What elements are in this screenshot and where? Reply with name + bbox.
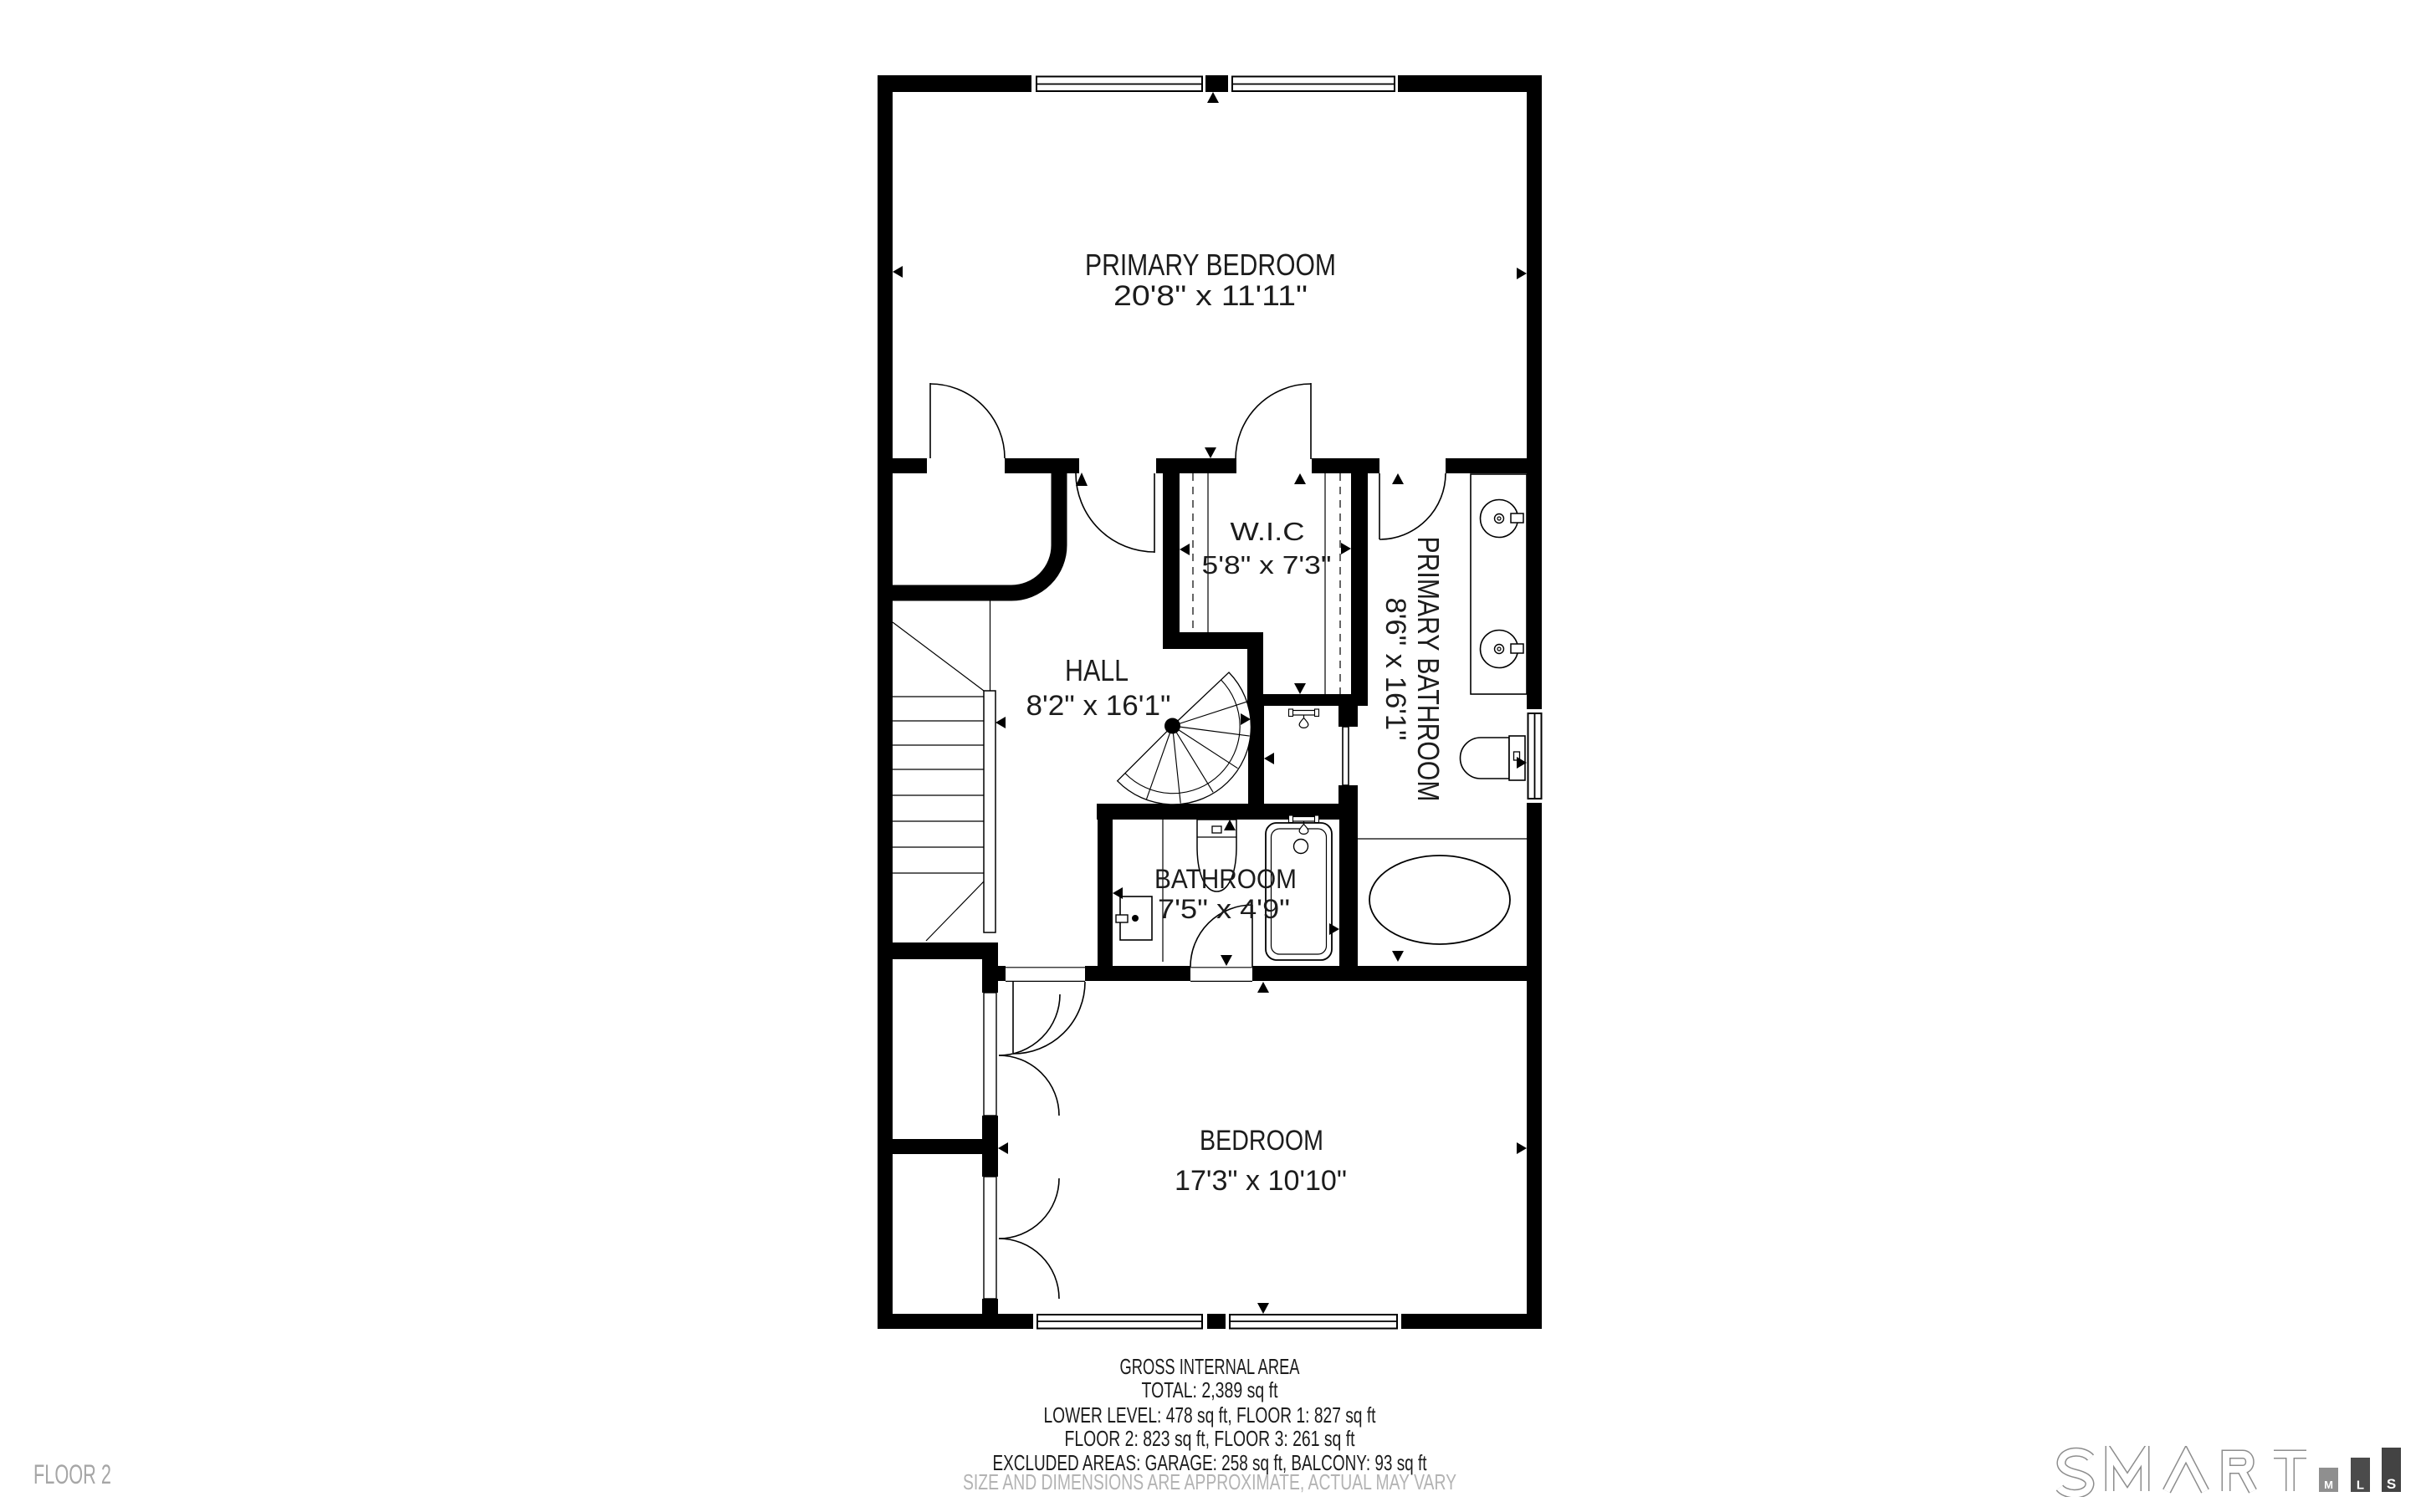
svg-text:SIZE AND DIMENSIONS ARE APPROX: SIZE AND DIMENSIONS ARE APPROXIMATE, ACT… [963,1469,1456,1494]
svg-text:HALL: HALL [1065,653,1129,687]
svg-text:FLOOR 2: FLOOR 2 [33,1459,111,1489]
svg-text:FLOOR 2: 823 sq ft, FLOOR 3: 2: FLOOR 2: 823 sq ft, FLOOR 3: 261 sq ft [1065,1426,1356,1451]
svg-text:BATHROOM: BATHROOM [1154,864,1297,894]
svg-text:8'6" x 16'1": 8'6" x 16'1" [1379,598,1411,741]
svg-text:LOWER LEVEL: 478 sq ft, FLOOR: LOWER LEVEL: 478 sq ft, FLOOR 1: 827 sq … [1044,1402,1377,1428]
svg-text:PRIMARY BATHROOM: PRIMARY BATHROOM [1411,537,1446,802]
svg-text:M: M [2324,1479,2333,1491]
svg-text:20'8" x 11'11": 20'8" x 11'11" [1113,280,1308,312]
svg-text:PRIMARY BEDROOM: PRIMARY BEDROOM [1085,248,1336,282]
svg-text:L: L [2357,1479,2364,1493]
svg-text:GROSS INTERNAL AREA: GROSS INTERNAL AREA [1120,1354,1300,1379]
svg-text:8'2" x 16'1": 8'2" x 16'1" [1026,690,1171,722]
svg-text:17'3" x 10'10": 17'3" x 10'10" [1175,1165,1347,1197]
svg-text:TOTAL: 2,389 sq ft: TOTAL: 2,389 sq ft [1142,1377,1279,1402]
svg-text:S: S [2387,1476,2396,1492]
svg-text:7'5" x 4'9": 7'5" x 4'9" [1158,894,1290,924]
svg-text:5'8" x 7'3": 5'8" x 7'3" [1202,550,1332,580]
svg-text:BEDROOM: BEDROOM [1200,1125,1323,1157]
svg-text:W.I.C: W.I.C [1231,517,1305,546]
